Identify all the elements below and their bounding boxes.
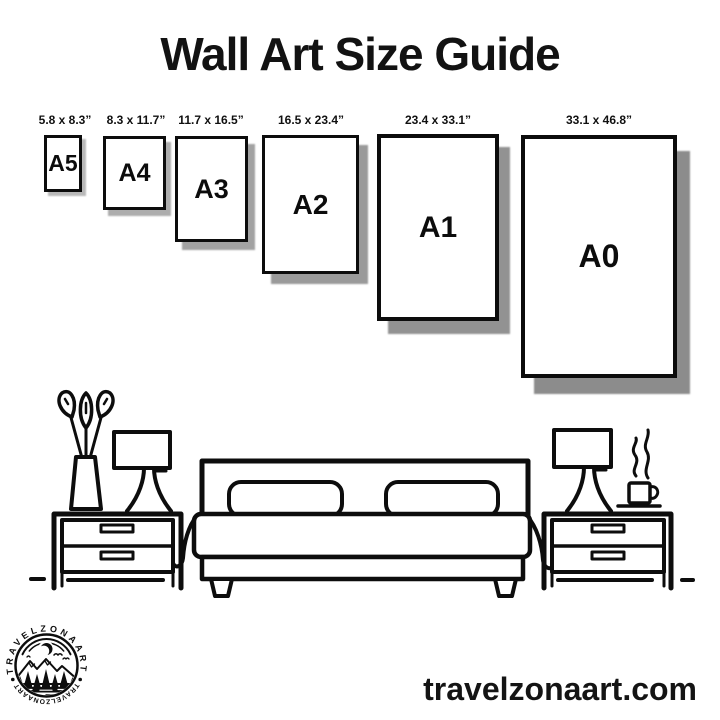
- frame-a2: A2: [262, 135, 359, 274]
- frame-a1-name: A1: [419, 211, 457, 245]
- page-title: Wall Art Size Guide: [0, 27, 720, 81]
- table-lamp-left-icon: [114, 432, 171, 511]
- bed-base: [202, 557, 523, 579]
- nightstand-left: [54, 514, 181, 588]
- table-lamp-right-icon: [554, 430, 611, 511]
- vase: [71, 457, 101, 509]
- leaf: [98, 392, 113, 417]
- steam: [633, 438, 637, 476]
- bedroom-illustration: [0, 375, 720, 605]
- coffee-cup-icon: [618, 430, 660, 506]
- frame-a3: A3: [175, 136, 248, 242]
- frame-a5: A5: [44, 135, 82, 192]
- frame-a0-name: A0: [579, 238, 620, 275]
- frame-a1: A1: [377, 134, 499, 321]
- leaf: [59, 392, 74, 417]
- size-label-a5: 5.8 x 8.3”: [39, 113, 92, 127]
- bird-icon: [63, 658, 69, 659]
- bird-icon: [54, 654, 62, 655]
- frame-a5-name: A5: [48, 150, 77, 177]
- bed-leg-left: [211, 579, 232, 596]
- logo-separator-dot: [78, 678, 82, 682]
- size-label-a3: 11.7 x 16.5”: [178, 113, 243, 127]
- logo-separator-dot: [11, 678, 15, 682]
- frame-a3-name: A3: [194, 174, 229, 205]
- website-url: travelzonaart.com: [423, 671, 697, 708]
- size-label-a4: 8.3 x 11.7”: [107, 113, 166, 127]
- size-label-a0: 33.1 x 46.8”: [566, 113, 632, 127]
- pillow-left: [229, 482, 342, 516]
- bed-icon: [173, 461, 554, 596]
- frame-a4: A4: [103, 136, 166, 210]
- plant-vase-icon: [59, 392, 113, 509]
- nightstand-right: [544, 514, 671, 588]
- steam: [645, 430, 648, 478]
- travelzonaart-logo-badge: TRAVELZONAART TRAVELZONAART: [0, 620, 93, 713]
- bed-leg-right: [495, 579, 516, 596]
- size-label-a2: 16.5 x 23.4”: [278, 113, 344, 127]
- frame-a2-name: A2: [293, 189, 329, 221]
- cup-body: [629, 483, 650, 503]
- frame-a4-name: A4: [119, 159, 151, 188]
- frame-a0: A0: [521, 135, 677, 378]
- pillow-right: [386, 482, 498, 516]
- size-label-a1: 23.4 x 33.1”: [405, 113, 471, 127]
- mattress: [194, 514, 530, 557]
